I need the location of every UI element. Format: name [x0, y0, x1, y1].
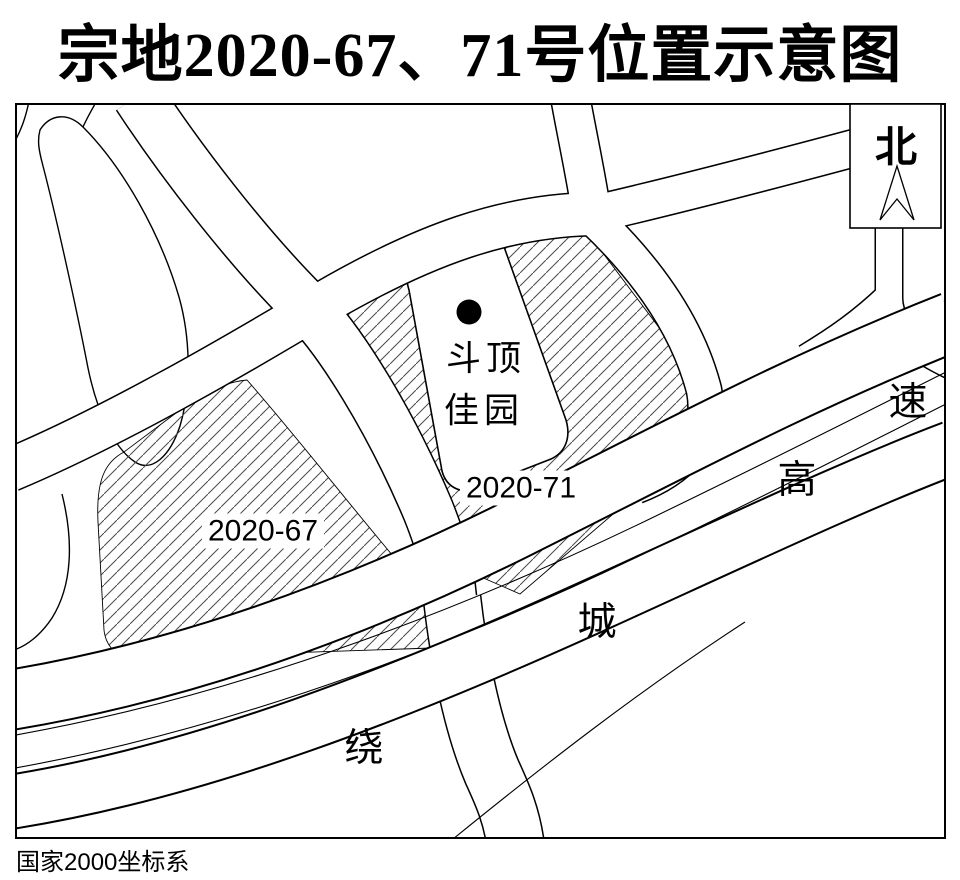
parcel-67-label: 2020-67: [202, 514, 324, 549]
plot-location-map-page: 宗地2020-67、71号位置示意图: [0, 0, 960, 880]
parcel-71-label: 2020-71: [460, 471, 582, 506]
north-label: 北: [875, 114, 917, 175]
expressway-label-su: 速: [888, 371, 927, 427]
building-name-line1: 斗顶: [446, 331, 526, 382]
map-canvas: [0, 0, 960, 880]
building-name-line2: 佳园: [444, 383, 524, 434]
location-dot: [457, 300, 482, 325]
coordinate-system-note: 国家2000坐标系: [16, 842, 189, 877]
expressway-label-cheng: 城: [577, 591, 616, 647]
expressway-label-gao: 高: [777, 449, 816, 505]
expressway-label-rao: 绕: [344, 717, 383, 773]
